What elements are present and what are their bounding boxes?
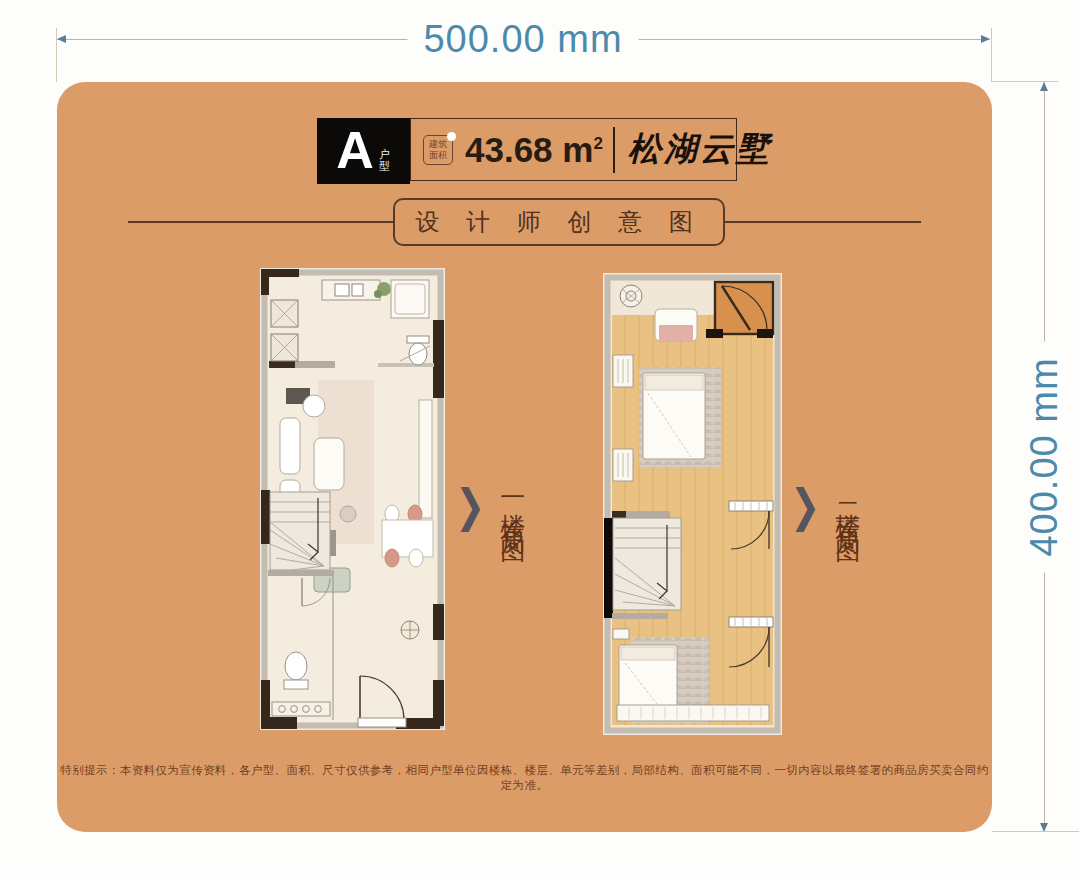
area-stamp: 建筑 面积 (423, 135, 453, 165)
area-text: 43.68 m2 (465, 130, 603, 170)
second-floor-plan (603, 273, 782, 735)
first-floor-label: 一楼布局图 (497, 484, 530, 529)
unit-header: A 户型 建筑 面积 43.68 m2 松湖云墅 (317, 118, 737, 184)
washer (391, 280, 429, 318)
kitchen-counter (322, 280, 380, 300)
height-dimension-label: 400.00 mm (1023, 341, 1066, 572)
area-unit: m (562, 130, 593, 169)
section-title-band: 设 计 师 创 意 图 (57, 198, 992, 246)
area-exponent: 2 (593, 134, 602, 153)
toilet-upper (409, 343, 427, 365)
dimension-arrow-up-icon (1040, 82, 1048, 91)
disclaimer-text: 特别提示：本资料仅为宣传资料，各户型、面积、尺寸仅供参考，相同户型单位因楼栋、楼… (57, 763, 992, 793)
extension-line-right-top (992, 81, 1058, 82)
stairs (270, 492, 330, 570)
stamp-dot (447, 132, 456, 141)
dimension-arrow-left-icon (57, 35, 66, 43)
toilet-lower (285, 652, 307, 680)
extension-line-top-left (56, 28, 57, 82)
vent-icon (401, 621, 419, 639)
extension-line-right-bottom (992, 831, 1079, 832)
extension-line-top-right (991, 28, 992, 82)
bed-upper (639, 367, 721, 467)
stairs (604, 518, 681, 618)
balcony (706, 282, 773, 338)
second-floor-label: 二楼布局图 (832, 484, 865, 529)
second-floor-label-group: ❯ 二楼布局图 (790, 422, 865, 590)
section-title: 设 计 师 创 意 图 (393, 198, 724, 246)
title-line-left (128, 221, 393, 223)
unit-info-box: 建筑 面积 43.68 m2 松湖云墅 (410, 118, 737, 181)
first-floor-plan (260, 268, 445, 730)
stamp-line1: 建筑 (424, 139, 452, 150)
chevron-right-icon: ❯ (790, 484, 820, 529)
project-name: 松湖云墅 (628, 127, 772, 172)
dimension-arrow-right-icon (981, 35, 990, 43)
bottom-cabinet (617, 705, 769, 721)
unit-letter: A (336, 124, 374, 176)
stamp-line2: 面积 (424, 150, 452, 161)
sofa (280, 418, 300, 474)
unit-type-badge: A 户型 (317, 118, 410, 184)
unit-suffix: 户型 (379, 148, 391, 172)
title-line-right (725, 221, 921, 223)
floorplan-card: A 户型 建筑 面积 43.68 m2 松湖云墅 设 计 师 创 意 图 (57, 82, 992, 832)
header-divider (613, 127, 615, 173)
width-dimension-label: 500.00 mm (407, 18, 638, 61)
tv-cabinet (419, 400, 432, 518)
first-floor-label-group: ❯ 一楼布局图 (455, 422, 530, 590)
coffee-table (314, 438, 344, 490)
chevron-right-icon: ❯ (455, 484, 485, 529)
area-value: 43.68 (465, 130, 553, 169)
